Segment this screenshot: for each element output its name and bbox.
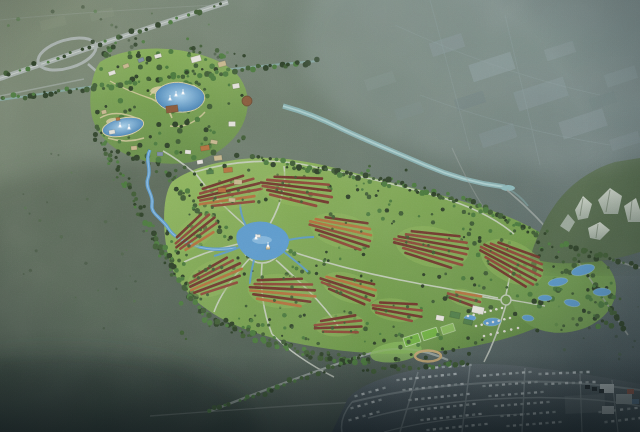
masterplan-scene bbox=[0, 0, 640, 432]
aerial-rendering bbox=[0, 0, 640, 432]
bottom-shade bbox=[0, 0, 640, 432]
